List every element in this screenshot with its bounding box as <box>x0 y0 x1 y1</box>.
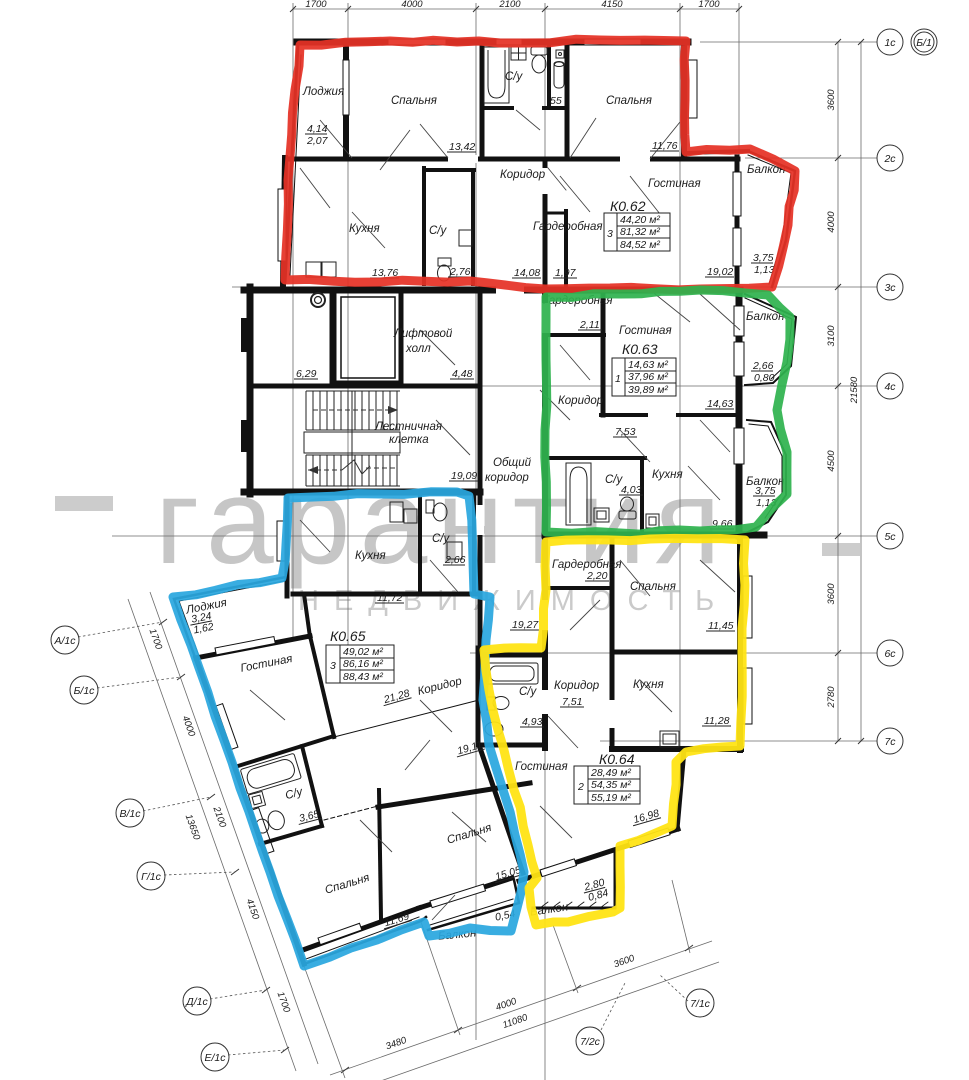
svg-text:7,53: 7,53 <box>615 426 636 438</box>
svg-text:14,08: 14,08 <box>514 267 540 279</box>
svg-text:2780: 2780 <box>826 686 837 709</box>
svg-text:Гостиная: Гостиная <box>648 178 701 190</box>
svg-text:44,20 м²: 44,20 м² <box>620 214 660 226</box>
svg-text:Гардеробная: Гардеробная <box>533 221 603 233</box>
svg-text:Спальня: Спальня <box>630 581 676 593</box>
svg-text:4,14: 4,14 <box>307 123 328 135</box>
svg-text:Е/1с: Е/1с <box>204 1052 226 1064</box>
svg-text:4150: 4150 <box>601 0 623 10</box>
svg-text:А/1с: А/1с <box>53 635 76 647</box>
svg-text:Д/1с: Д/1с <box>185 996 208 1008</box>
svg-text:84,52 м²: 84,52 м² <box>620 239 660 251</box>
svg-text:Лестничная: Лестничная <box>374 421 442 433</box>
svg-text:С/у: С/у <box>432 533 451 545</box>
svg-text:39,89 м²: 39,89 м² <box>628 384 668 396</box>
svg-text:37,96 м²: 37,96 м² <box>628 371 668 383</box>
svg-text:К0.63: К0.63 <box>622 341 658 357</box>
svg-text:1: 1 <box>615 373 621 385</box>
svg-text:19,02: 19,02 <box>707 266 733 278</box>
svg-text:Лифтовой: Лифтовой <box>393 328 453 340</box>
svg-text:С/у: С/у <box>429 225 448 237</box>
svg-text:4,03: 4,03 <box>621 484 642 496</box>
svg-text:7,51: 7,51 <box>562 696 582 708</box>
svg-text:холл: холл <box>405 343 431 355</box>
svg-text:Кухня: Кухня <box>355 550 386 562</box>
svg-text:С/у: С/у <box>505 71 524 83</box>
svg-text:14,63: 14,63 <box>707 398 733 410</box>
svg-text:2с: 2с <box>883 153 896 165</box>
svg-text:1,97: 1,97 <box>555 267 577 279</box>
svg-text:7/2с: 7/2с <box>580 1036 601 1048</box>
svg-text:11,76: 11,76 <box>652 140 678 152</box>
svg-text:28,49 м²: 28,49 м² <box>590 767 631 779</box>
svg-text:2100: 2100 <box>498 0 521 10</box>
svg-text:11,45: 11,45 <box>708 620 734 632</box>
svg-text:1с: 1с <box>884 37 896 49</box>
svg-text:Б/1с: Б/1с <box>74 685 96 697</box>
svg-text:19,09: 19,09 <box>451 470 477 482</box>
svg-text:Общий: Общий <box>493 457 532 469</box>
svg-text:13,42: 13,42 <box>449 141 475 153</box>
svg-text:К0.64: К0.64 <box>599 751 635 767</box>
svg-text:К0.65: К0.65 <box>330 628 366 644</box>
svg-text:Кухня: Кухня <box>652 469 683 481</box>
svg-text:К0.62: К0.62 <box>610 198 646 214</box>
svg-text:Спальня: Спальня <box>606 95 652 107</box>
svg-text:4с: 4с <box>884 381 896 393</box>
svg-text:4,48: 4,48 <box>452 368 473 380</box>
svg-text:коридор: коридор <box>485 472 529 484</box>
svg-text:6с: 6с <box>884 648 896 660</box>
svg-text:4,93: 4,93 <box>522 716 543 728</box>
svg-text:55,19 м²: 55,19 м² <box>591 792 631 804</box>
svg-text:Г/1с: Г/1с <box>141 871 161 883</box>
svg-text:Спальня: Спальня <box>391 95 437 107</box>
svg-text:21580: 21580 <box>849 376 860 404</box>
svg-text:Кухня: Кухня <box>633 679 664 691</box>
svg-text:2,66: 2,66 <box>752 360 774 372</box>
svg-text:4000: 4000 <box>401 0 423 10</box>
svg-text:2,66: 2,66 <box>444 554 466 566</box>
svg-text:49,02 м²: 49,02 м² <box>343 646 383 658</box>
svg-text:3,75: 3,75 <box>755 485 776 497</box>
svg-text:Гостиная: Гостиная <box>619 325 672 337</box>
svg-text:14,63 м²: 14,63 м² <box>628 359 668 371</box>
svg-text:3100: 3100 <box>826 325 837 347</box>
svg-text:11,72: 11,72 <box>377 592 403 604</box>
svg-text:3600: 3600 <box>826 583 837 605</box>
svg-text:54,35 м²: 54,35 м² <box>591 779 631 791</box>
svg-text:11,28: 11,28 <box>704 715 730 727</box>
svg-text:6,29: 6,29 <box>296 368 317 380</box>
svg-text:19,27: 19,27 <box>512 619 539 631</box>
svg-text:3600: 3600 <box>826 89 837 111</box>
svg-text:86,16 м²: 86,16 м² <box>343 658 383 670</box>
svg-text:1700: 1700 <box>698 0 720 10</box>
svg-text:3,75: 3,75 <box>753 252 774 264</box>
svg-text:Коридор: Коридор <box>500 169 546 181</box>
svg-text:4000: 4000 <box>826 211 837 233</box>
svg-text:3: 3 <box>607 228 613 240</box>
svg-text:Кухня: Кухня <box>349 223 380 235</box>
svg-text:2,20: 2,20 <box>586 570 608 582</box>
svg-text:3: 3 <box>330 660 336 672</box>
svg-text:3с: 3с <box>884 282 896 294</box>
svg-text:5с: 5с <box>884 531 896 543</box>
svg-text:1700: 1700 <box>305 0 327 10</box>
svg-text:7с: 7с <box>884 736 896 748</box>
svg-text:88,43 м²: 88,43 м² <box>343 671 383 683</box>
svg-text:2,11: 2,11 <box>579 319 600 331</box>
svg-text:2: 2 <box>577 781 584 793</box>
svg-text:0,80: 0,80 <box>754 372 775 384</box>
svg-text:2,76: 2,76 <box>449 266 471 278</box>
svg-text:Гостиная: Гостиная <box>515 761 568 773</box>
svg-text:55: 55 <box>550 95 562 107</box>
svg-text:Б/1: Б/1 <box>916 37 932 49</box>
svg-text:Коридор: Коридор <box>558 395 604 407</box>
svg-text:С/у: С/у <box>519 686 538 698</box>
svg-text:81,32 м²: 81,32 м² <box>620 226 660 238</box>
svg-text:клетка: клетка <box>389 434 429 446</box>
svg-text:Лоджия: Лоджия <box>302 86 344 98</box>
svg-text:7/1с: 7/1с <box>690 998 711 1010</box>
svg-text:4500: 4500 <box>826 450 837 472</box>
svg-text:2,07: 2,07 <box>306 135 329 147</box>
svg-text:В/1с: В/1с <box>119 808 141 820</box>
svg-text:Коридор: Коридор <box>554 680 600 692</box>
